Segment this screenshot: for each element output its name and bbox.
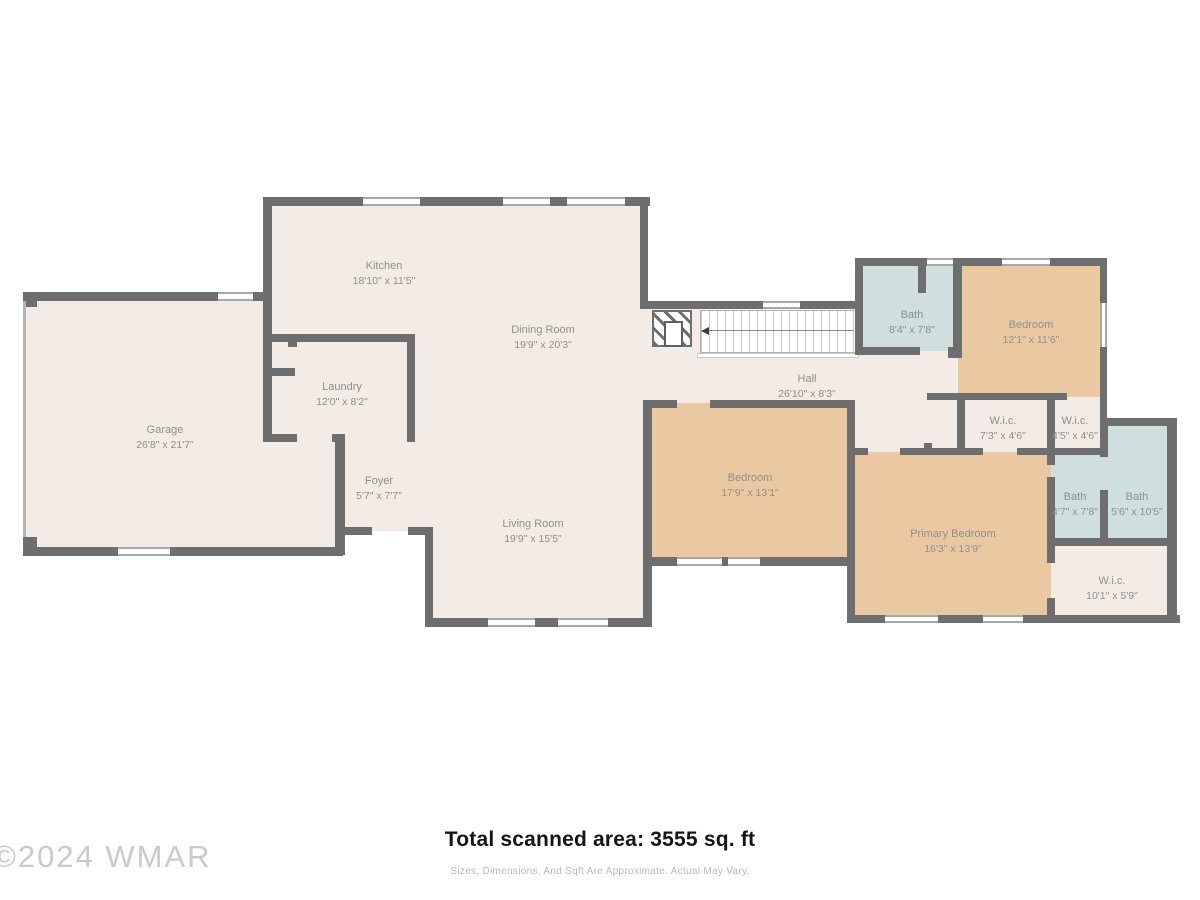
chimney	[652, 310, 692, 347]
stair-direction-arrow-icon	[701, 327, 709, 335]
garage-door	[118, 547, 170, 556]
room-dims: 8'4" x 7'8"	[889, 323, 935, 338]
wall	[648, 301, 857, 309]
window	[503, 197, 550, 206]
room-name: Kitchen	[366, 259, 403, 274]
window	[983, 615, 1023, 623]
room-name: Bedroom	[1009, 318, 1054, 333]
room-label-bedroom-top-right: Bedroom12'1" x 11'6"	[1003, 318, 1060, 348]
wall	[847, 400, 855, 623]
room-label-bath-56: Bath5'6" x 10'5"	[1111, 490, 1163, 520]
room-dims: 4'5" x 4'6"	[1052, 429, 1098, 444]
window	[558, 618, 608, 627]
room-label-laundry: Laundry12'0" x 8'2"	[316, 380, 368, 410]
wall	[1047, 448, 1103, 455]
wall	[23, 292, 218, 301]
door-hinge-marker	[288, 342, 297, 347]
wall	[640, 197, 648, 309]
window	[728, 557, 760, 566]
room-dims: 26'8" x 21'7"	[136, 438, 194, 453]
window	[763, 301, 800, 309]
room-dims: 18'10" x 11'5"	[353, 274, 416, 289]
stair-landing-strip	[697, 353, 859, 358]
wall	[918, 258, 926, 293]
room-label-bath-top: Bath8'4" x 7'8"	[889, 308, 935, 338]
room-dims: 16'3" x 13'9"	[924, 542, 982, 557]
room-label-kitchen: Kitchen18'10" x 11'5"	[353, 259, 416, 289]
wall	[345, 527, 372, 535]
window	[567, 197, 625, 206]
window	[363, 197, 420, 206]
room-dims: 12'1" x 11'6"	[1003, 333, 1060, 348]
wall	[900, 448, 928, 455]
window	[677, 557, 722, 566]
room-label-bath-47: Bath4'7" x 7'8"	[1052, 490, 1098, 520]
room-name: W.i.c.	[1062, 414, 1089, 429]
window	[885, 615, 938, 623]
room-label-wic-1: W.i.c.7'3" x 4'6"	[980, 414, 1026, 444]
wall	[263, 301, 272, 442]
floor-plan-canvas: Garage26'8" x 21'7" Kitchen18'10" x 11'5…	[0, 0, 1200, 900]
room-label-bedroom-middle: Bedroom17'9" x 13'1"	[721, 471, 779, 501]
wall	[855, 448, 868, 455]
room-name: Foyer	[365, 474, 393, 489]
wall	[1100, 418, 1108, 457]
room-label-wic-101: W.i.c.10'1" x 5'9"	[1086, 574, 1138, 604]
room-dims: 7'3" x 4'6"	[980, 429, 1026, 444]
room-dims: 5'7" x 7'7"	[356, 489, 402, 504]
window	[218, 292, 253, 301]
wall	[23, 537, 37, 555]
window	[927, 258, 953, 266]
wall	[1047, 455, 1055, 465]
wall	[855, 258, 863, 355]
room-dims: 10'1" x 5'9"	[1086, 589, 1138, 604]
wall	[1100, 347, 1107, 418]
chimney-flue	[664, 321, 683, 347]
wall	[643, 557, 652, 627]
room-name: Living Room	[502, 517, 563, 532]
wall	[1100, 418, 1177, 426]
wall	[335, 434, 345, 555]
wall	[425, 527, 433, 627]
wall	[1100, 490, 1108, 545]
room-dims: 5'6" x 10'5"	[1111, 505, 1163, 520]
wall	[957, 400, 965, 455]
wall	[1167, 418, 1177, 623]
wall	[407, 334, 415, 442]
wall	[425, 618, 652, 627]
wall	[263, 334, 415, 342]
room-name: Bath	[901, 308, 924, 323]
room-name: Garage	[147, 423, 184, 438]
room-label-foyer: Foyer5'7" x 7'7"	[356, 474, 402, 504]
window	[1100, 303, 1107, 347]
room-label-living-room: Living Room19'9" x 15'5"	[502, 517, 563, 547]
wall	[927, 393, 1067, 400]
room-dims: 4'7" x 7'8"	[1052, 505, 1098, 520]
room-label-wic-2: W.i.c.4'5" x 4'6"	[1052, 414, 1098, 444]
room-label-dining-room: Dining Room19'9" x 20'3"	[511, 323, 575, 353]
wall	[855, 258, 1107, 266]
staircase	[700, 310, 857, 353]
room-name: W.i.c.	[1099, 574, 1126, 589]
room-name: Dining Room	[511, 323, 575, 338]
room-name: W.i.c.	[990, 414, 1017, 429]
room-dims: 19'9" x 20'3"	[514, 338, 572, 353]
window	[488, 618, 535, 627]
garage-door-line	[23, 301, 26, 537]
stair-direction-line	[706, 330, 854, 331]
room-name: Primary Bedroom	[910, 527, 996, 542]
room-name: Bedroom	[728, 471, 773, 486]
room-name: Bath	[1126, 490, 1149, 505]
room-name: Hall	[798, 372, 817, 387]
wall	[1047, 598, 1055, 623]
wall	[1100, 258, 1107, 303]
room-dims: 17'9" x 13'1"	[721, 486, 779, 501]
kitchen-fill	[266, 200, 647, 340]
wall	[23, 547, 343, 556]
room-name: Laundry	[322, 380, 362, 395]
wall	[928, 448, 983, 455]
bath-56-fill	[1104, 423, 1171, 542]
wall	[953, 258, 962, 358]
room-label-garage: Garage26'8" x 21'7"	[136, 423, 194, 453]
wall	[855, 347, 920, 355]
copyright-watermark: ©2024 WMAR	[0, 839, 212, 875]
dining-fill	[410, 338, 647, 533]
room-label-hall: Hall26'10" x 8'3"	[778, 372, 836, 402]
room-dims: 19'9" x 15'5"	[504, 532, 562, 547]
window	[1002, 258, 1050, 266]
wall	[1047, 538, 1177, 546]
wall	[253, 292, 263, 301]
wall	[643, 400, 652, 566]
room-dims: 26'10" x 8'3"	[778, 387, 836, 402]
room-name: Bath	[1064, 490, 1087, 505]
room-dims: 12'0" x 8'2"	[316, 395, 368, 410]
room-label-primary-bedroom: Primary Bedroom16'3" x 13'9"	[910, 527, 996, 557]
